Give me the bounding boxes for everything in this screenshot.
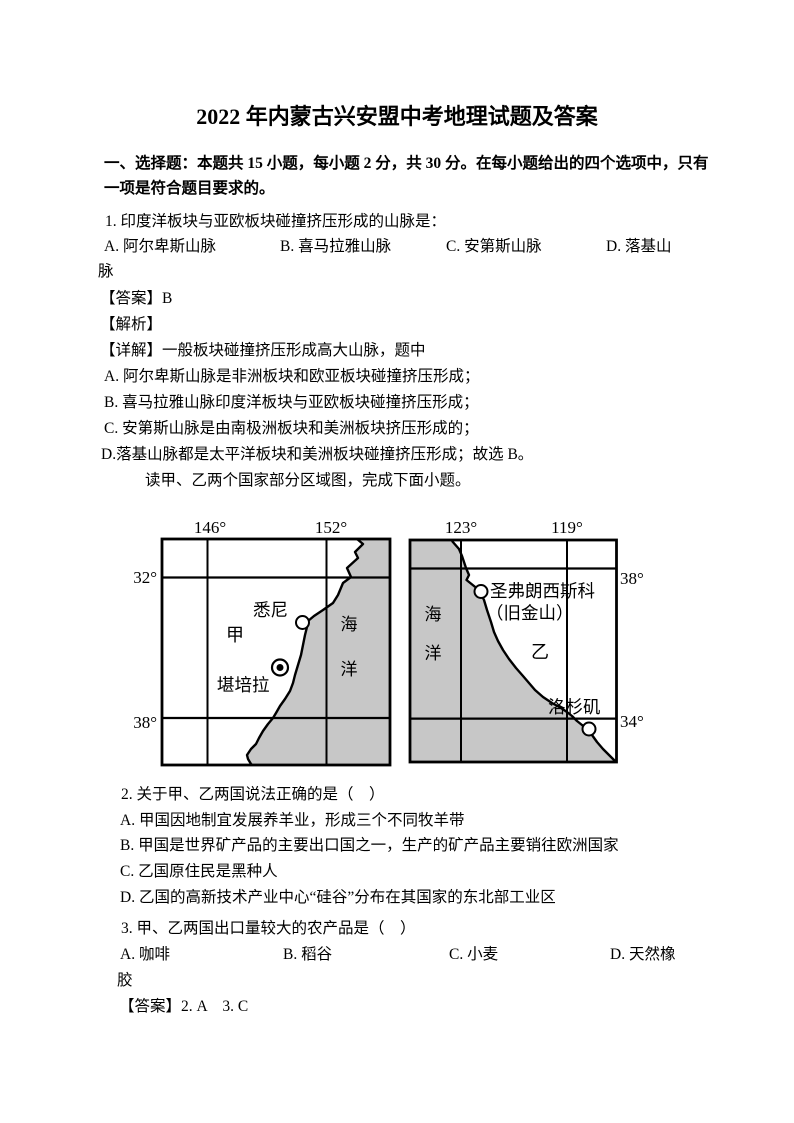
- q1-detail-b: B. 喜马拉雅山脉印度洋板块与亚欧板块碰撞挤压形成；: [104, 394, 479, 412]
- canberra-marker-inner: [277, 664, 284, 671]
- two-country-maps-figure: 146° 152° 32° 38° 悉尼 甲 堪培拉 海 洋: [130, 505, 660, 780]
- map-jia-ocean-fill: [247, 539, 389, 765]
- los-angeles-marker: [583, 723, 596, 736]
- san-francisco-marker: [475, 585, 488, 598]
- answers-q2-q3: 【答案】2. A 3. C: [119, 998, 248, 1016]
- exam-document-page: 2022 年内蒙古兴安盟中考地理试题及答案 一、选择题：本题共 15 小题，每小…: [0, 0, 794, 1123]
- q1-answer: 【答案】B: [100, 290, 172, 308]
- map-yi-lon-right-label: 119°: [551, 518, 583, 537]
- q2-option-a: A. 甲国因地制宜发展养羊业，形成三个不同牧羊带: [120, 812, 464, 830]
- figure-intro: 读甲、乙两个国家部分区域图，完成下面小题。: [145, 472, 471, 490]
- map-jia-lon-right-label: 152°: [315, 518, 347, 537]
- map-yi-lon-left-label: 123°: [445, 518, 477, 537]
- map-jia-ocean-label-char1: 海: [341, 615, 358, 634]
- q1-detail-d: D.落基山脉都是太平洋板块和美洲板块碰撞挤压形成；故选 B。: [101, 446, 533, 464]
- q2-option-c: C. 乙国原住民是黑种人: [120, 863, 278, 881]
- section-header-line2: 一项是符合题目要求的。: [104, 180, 275, 198]
- los-angeles-label: 洛杉矶: [548, 697, 601, 717]
- q3-stem: 3. 甲、乙两国出口量较大的农产品是（ ）: [121, 920, 416, 938]
- q3-option-b: B. 稻谷: [283, 946, 332, 964]
- q1-option-b: B. 喜马拉雅山脉: [280, 238, 391, 256]
- section-header-line1: 一、选择题：本题共 15 小题，每小题 2 分，共 30 分。在每小题给出的四个…: [104, 155, 709, 173]
- map-jia-lat-bottom-label: 38°: [133, 713, 157, 732]
- map-yi-lat-top-label: 38°: [620, 569, 644, 588]
- q3-option-d-wrap: 胶: [117, 972, 133, 990]
- q2-option-d: D. 乙国的高新技术产业中心“硅谷”分布在其国家的东北部工业区: [120, 889, 556, 907]
- q3-option-a: A. 咖啡: [120, 946, 170, 964]
- map-jia-lon-left-label: 146°: [194, 518, 226, 537]
- q1-option-c: C. 安第斯山脉: [446, 238, 542, 256]
- map-yi-ocean-label-char2: 洋: [425, 644, 442, 663]
- map-jia: 146° 152° 32° 38° 悉尼 甲 堪培拉 海 洋: [133, 518, 390, 765]
- q1-detail-a: A. 阿尔卑斯山脉是非洲板块和欧亚板块碰撞挤压形成；: [104, 368, 479, 386]
- canberra-label: 堪培拉: [217, 675, 270, 695]
- q2-stem: 2. 关于甲、乙两国说法正确的是（ ）: [121, 786, 385, 804]
- q1-option-d-wrap: 脉: [98, 263, 114, 281]
- map-yi-ocean-label-char1: 海: [425, 605, 442, 624]
- region-jia-label: 甲: [226, 625, 244, 645]
- map-jia-ocean-label-char2: 洋: [341, 660, 358, 679]
- region-yi-label: 乙: [531, 642, 549, 662]
- map-jia-lat-top-label: 32°: [133, 568, 157, 587]
- q1-analysis-label: 【解析】: [100, 316, 162, 334]
- q2-option-b: B. 甲国是世界矿产品的主要出口国之一，生产的矿产品主要销往欧洲国家: [120, 837, 619, 855]
- q1-stem: 1. 印度洋板块与亚欧板块碰撞挤压形成的山脉是：: [105, 213, 446, 231]
- page-title: 2022 年内蒙古兴安盟中考地理试题及答案: [0, 99, 794, 131]
- q3-option-d: D. 天然橡: [610, 946, 675, 964]
- sydney-marker: [296, 616, 309, 629]
- q1-detail-c: C. 安第斯山脉是由南极洲板块和美洲板块挤压形成的；: [104, 420, 479, 438]
- q1-option-a: A. 阿尔卑斯山脉: [104, 238, 216, 256]
- san-francisco-label-line2: （旧金山）: [486, 603, 574, 623]
- q3-option-c: C. 小麦: [449, 946, 498, 964]
- map-yi: 123° 119° 38° 34° 圣弗朗西斯科 （旧金山） 乙 洛杉矶 海 洋: [410, 518, 644, 762]
- san-francisco-label-line1: 圣弗朗西斯科: [490, 581, 595, 601]
- sydney-label: 悉尼: [253, 600, 288, 620]
- map-yi-lat-bottom-label: 34°: [620, 712, 644, 731]
- q1-option-d: D. 落基山: [606, 238, 671, 256]
- q1-detail-intro: 【详解】一般板块碰撞挤压形成高大山脉，题中: [100, 342, 426, 360]
